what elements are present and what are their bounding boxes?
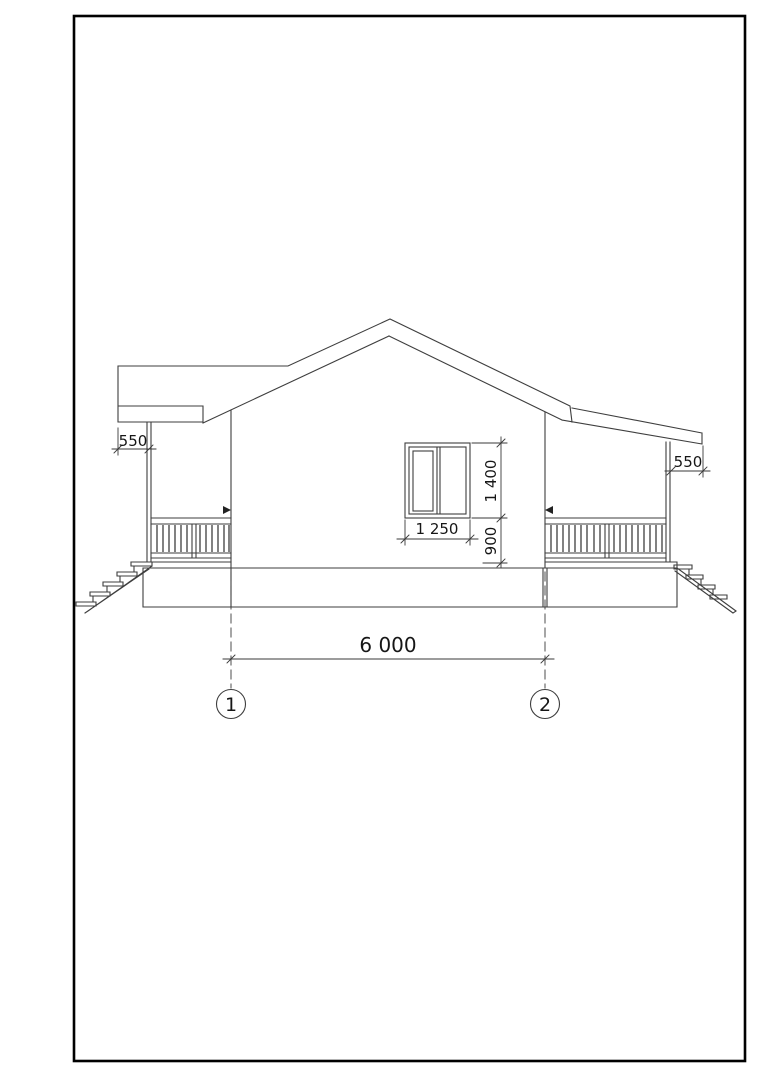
- blueprint-page: 550 550 1 250 1 400 900 6 000 1 2: [0, 0, 764, 1080]
- dim-window-width: 1 250: [397, 520, 478, 545]
- left-porch: [76, 422, 231, 613]
- axis-label-1: 1: [225, 694, 237, 716]
- window-left-casement: [413, 451, 433, 511]
- plinth: [143, 568, 677, 607]
- dim-left-overhang-label: 550: [119, 432, 148, 450]
- roof-outline: [118, 319, 702, 444]
- dim-window-width-label: 1 250: [416, 520, 459, 538]
- dim-window-height-label: 1 400: [482, 460, 500, 503]
- window-mullion: [437, 447, 440, 514]
- right-railing-balusters: [551, 525, 662, 552]
- dim-axis-span-label: 6 000: [359, 633, 416, 657]
- plinth-outline: [143, 568, 677, 607]
- dim-sill-height-label: 900: [482, 527, 500, 556]
- axis-markers: 1 2: [217, 690, 560, 719]
- left-steps-treads: [76, 562, 152, 606]
- left-handrail-wall-marker: [223, 506, 231, 514]
- right-porch: [545, 442, 736, 613]
- window: [405, 443, 470, 518]
- axis-dashed-lines: [231, 572, 545, 688]
- right-porch-floor: [545, 562, 677, 568]
- left-steps-stringer: [85, 566, 152, 613]
- dim-right-overhang: 550: [665, 446, 710, 477]
- left-column: [147, 422, 151, 562]
- dim-window-vertical: 1 400 900: [472, 437, 507, 568]
- walls: [223, 410, 553, 568]
- dim-axis-span: 6 000: [223, 572, 554, 688]
- right-column: [666, 442, 670, 562]
- roof: [118, 319, 702, 444]
- elevation-drawing: 550 550 1 250 1 400 900 6 000 1 2: [0, 0, 764, 1080]
- dim-left-overhang: 550: [112, 428, 156, 455]
- left-railing-balusters: [157, 525, 229, 552]
- right-steps-stringer: [675, 568, 736, 613]
- axis-label-2: 2: [539, 694, 551, 716]
- dim-right-overhang-label: 550: [674, 453, 703, 471]
- right-handrail-wall-marker: [545, 506, 553, 514]
